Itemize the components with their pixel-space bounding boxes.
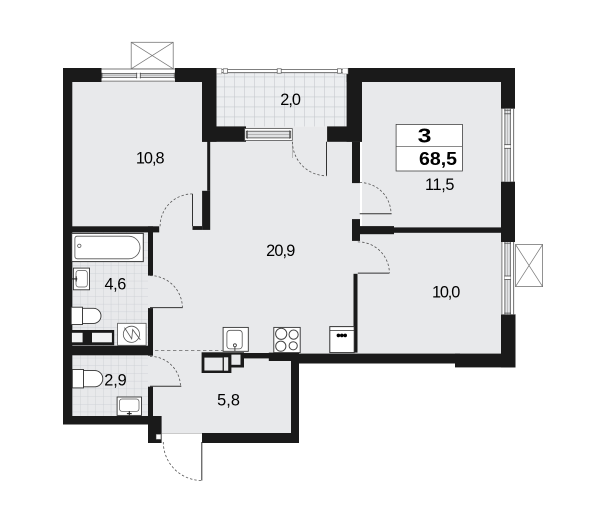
svg-text:11,5: 11,5 — [425, 176, 455, 194]
svg-text:2,0: 2,0 — [280, 91, 301, 109]
svg-text:2,9: 2,9 — [104, 372, 126, 390]
svg-text:3: 3 — [418, 124, 432, 147]
svg-text:4,6: 4,6 — [105, 276, 127, 294]
svg-text:5,8: 5,8 — [217, 391, 240, 409]
svg-text:10,8: 10,8 — [136, 150, 165, 168]
svg-text:68,5: 68,5 — [419, 148, 457, 169]
svg-text:20,9: 20,9 — [266, 242, 295, 260]
svg-text:10,0: 10,0 — [432, 283, 460, 301]
